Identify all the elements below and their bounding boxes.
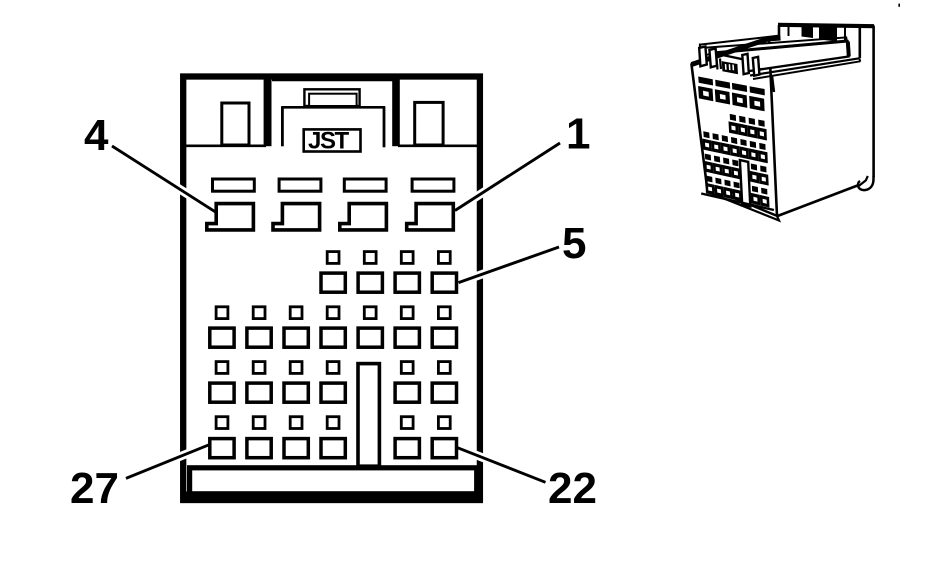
svg-text:27: 27 — [70, 464, 119, 513]
svg-text:4: 4 — [84, 111, 109, 160]
svg-text:JST: JST — [308, 127, 350, 154]
svg-text:1: 1 — [566, 110, 590, 159]
svg-text:5: 5 — [562, 219, 586, 268]
svg-text:22: 22 — [548, 464, 597, 513]
